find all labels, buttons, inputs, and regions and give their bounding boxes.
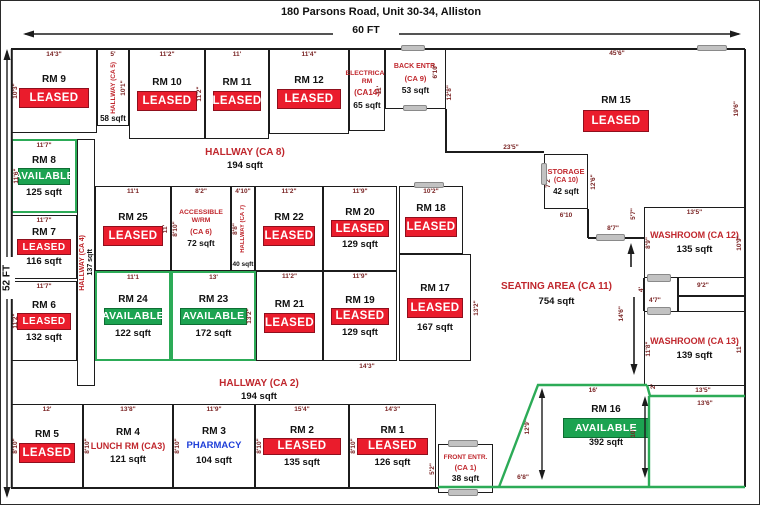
dim-label: 2'	[651, 384, 658, 389]
dim-top: 11'1	[127, 275, 139, 282]
room-label: STORAGE	[548, 167, 585, 176]
room-hallway-ca7: 4'10" 8'8" HALLWAY (CA 7) 40 sqft	[231, 186, 255, 271]
dim-top: 11'	[233, 52, 241, 59]
room-name: RM 21	[275, 299, 304, 310]
room-name: RM 3	[202, 426, 226, 437]
status-badge: LEASED	[19, 443, 75, 463]
dim-top: 5'	[110, 52, 115, 59]
door-back-entrance-bottom	[403, 105, 427, 111]
hallway-sqft: 194 sqft	[189, 392, 329, 402]
dim-left: 8'9"	[646, 237, 653, 249]
room-label: ELECTRICAL RM	[346, 70, 389, 86]
status-badge: LEASED	[263, 226, 315, 246]
dim-label: 13'6"	[675, 400, 735, 407]
dim-top: 11'9"	[206, 407, 221, 414]
dim-label: 4'7"	[649, 298, 661, 305]
status-badge: LEASED	[583, 110, 649, 132]
dim-left: 12'9"	[525, 419, 532, 434]
dim-top: 11'2"	[159, 52, 174, 59]
room-rm10: 11'2" 11'2" RM 10 LEASED	[129, 49, 205, 139]
status-badge: LEASED	[213, 91, 261, 111]
room-sqft: 129 sqft	[342, 327, 378, 338]
dim-label: 23'5"	[481, 144, 541, 151]
room-ca: (CA 6)	[190, 227, 212, 236]
dim-top: 14'3"	[46, 52, 61, 59]
dim-top: 11'1	[127, 189, 139, 196]
dim-bottom: 6'8"	[501, 474, 545, 481]
seating-area-sqft: 754 sqft	[484, 297, 629, 307]
dim-label: 19'6"	[734, 101, 741, 116]
room-rm3: 11'9" 8'10" RM 3 PHARMACY 104 sqft	[173, 404, 255, 488]
arrow-down-icon	[4, 487, 11, 498]
room-name: RM 25	[118, 212, 147, 223]
room-ca: (CA 10)	[554, 177, 578, 185]
room-sqft: 122 sqft	[115, 328, 151, 339]
dim-label: 14'3"	[345, 363, 389, 370]
room-sqft: 104 sqft	[196, 455, 232, 466]
door-rm18	[414, 182, 444, 188]
dim-top: 10'2"	[423, 189, 438, 196]
dim-left: 8'10"	[257, 438, 264, 453]
door-washroom-ca12	[647, 274, 671, 282]
room-name: RM 20	[345, 207, 374, 218]
hallway-sqft: 137 sqft	[87, 249, 94, 275]
hallway-sqft: 40 sqft	[233, 262, 254, 269]
room-rm22: 11'2" RM 22 LEASED	[255, 186, 323, 271]
room-rm17: 13'2" RM 17 LEASED 167 sqft	[399, 254, 471, 361]
dim-top: 11'2"	[282, 274, 297, 281]
dim-right: 10'9"	[737, 235, 744, 250]
room-name: RM 9	[42, 74, 66, 85]
room-name: RM 19	[345, 295, 374, 306]
room-name: RM 2	[290, 425, 314, 436]
status-badge: LEASED	[277, 89, 341, 109]
room-washroom-ca13: 11'8" 11' WASHROOM (CA 13) 139 sqft	[644, 311, 745, 386]
hallway-label: HALLWAY (CA 2)	[189, 378, 329, 389]
room-name: RM 11	[223, 77, 252, 88]
dim-left: 8'8"	[233, 223, 240, 235]
room-washroom-ca12: 13'5" 8'9" 10'9" WASHROOM (CA 12) 135 sq…	[644, 207, 745, 278]
dim-label: 13'5"	[673, 387, 733, 394]
dim-top: 15'4"	[294, 407, 309, 414]
room-storage: STORAGE (CA 10) 42 sqft 7'2" 12'6" 6'10	[544, 154, 588, 209]
hallway-label: HALLWAY (CA 4)	[79, 235, 86, 291]
dim-top: 13'	[209, 275, 218, 282]
dim-bottom: 6'10	[560, 213, 572, 220]
status-badge: LEASED	[17, 239, 71, 255]
hallway-label: HALLWAY (CA 5)	[110, 62, 117, 114]
dim-label: 12'8"	[447, 85, 454, 100]
room-name: RM 8	[32, 155, 56, 166]
dim-top: 4'10"	[235, 189, 250, 196]
room-name: RM 18	[416, 203, 445, 214]
room-name: RM 16	[574, 404, 638, 415]
dim-right: 13'2"	[247, 308, 254, 323]
room-sqft: 139 sqft	[677, 350, 713, 361]
room-rm23: 13' 13'2" RM 23 AVAILABLE 172 sqft	[171, 271, 256, 361]
room-sqft: 53 sqft	[402, 85, 429, 95]
dim-left: 11'6"	[14, 168, 21, 183]
room-label: WASHROOM (CA 12)	[650, 230, 739, 241]
dim-right: 11'2"	[197, 86, 204, 101]
room-ca: (CA 9)	[405, 74, 427, 83]
room-sqft: 129 sqft	[342, 239, 378, 250]
dim-left: 8'10"	[175, 438, 182, 453]
room-front-entrance: FRONT ENTR. (CA 1) 38 sqft 5'2"	[438, 444, 493, 493]
dim-left: 8'10"	[351, 438, 358, 453]
seating-area-label: SEATING AREA (CA 11)	[484, 281, 629, 292]
room-rm20: 11'9" RM 20 LEASED 129 sqft	[323, 186, 397, 271]
dim-right: 11'	[377, 86, 384, 94]
room-label: LUNCH RM (CA3)	[91, 441, 166, 452]
dim-top: 13'5"	[687, 210, 702, 217]
room-name: RM 23	[199, 294, 228, 305]
door-front-entrance-bottom	[448, 489, 478, 496]
arrow-left-icon	[23, 31, 34, 38]
room-sqft: 167 sqft	[417, 322, 453, 333]
pharmacy-label: PHARMACY	[187, 440, 242, 451]
room-sqft: 65 sqft	[353, 100, 380, 110]
status-badge: LEASED	[17, 313, 71, 330]
room-rm19: 11'9" RM 19 LEASED 129 sqft	[323, 271, 397, 361]
room-sqft: 72 sqft	[187, 238, 214, 248]
hallway-label: HALLWAY (CA 7)	[240, 205, 246, 253]
dim-left: 11'2"	[13, 313, 20, 328]
status-badge: LEASED	[407, 298, 463, 318]
room-name: RM 6	[32, 300, 56, 311]
room-sqft: 116 sqft	[26, 256, 61, 267]
room-rm11: 11' RM 11 LEASED	[205, 49, 269, 139]
room-name: RM 5	[35, 429, 59, 440]
status-badge: LEASED	[137, 91, 197, 111]
dim-left: 10'3"	[13, 83, 20, 98]
dim-right: 11'	[163, 224, 170, 232]
arrow-up-icon	[628, 243, 635, 254]
room-rm6: 11'7" 11'2" RM 6 LEASED 132 sqft	[11, 281, 77, 361]
status-badge: LEASED	[103, 226, 163, 246]
room-rm12: 11'4" RM 12 LEASED	[269, 49, 349, 134]
door-seating-area	[596, 234, 625, 241]
status-badge: LEASED	[331, 308, 389, 325]
door-front-entrance-top	[448, 440, 478, 447]
room-name: RM 22	[274, 212, 303, 223]
room-sqft: 42 sqft	[553, 187, 579, 196]
room-hallway-ca5: 5' HALLWAY (CA 5) 10'1" 58 sqft	[97, 49, 129, 126]
room-name: RM 4	[116, 427, 140, 438]
dim-right: 13'2"	[474, 300, 481, 315]
dim-left: 8'10"	[173, 221, 180, 236]
dim-label: 4'	[639, 287, 646, 292]
room-electrical: ELECTRICAL RM (CA14) 65 sqft 11'	[349, 49, 385, 131]
dim-top: 11'7"	[36, 143, 51, 150]
status-badge: AVAILABLE	[104, 308, 162, 325]
dim-label: 9'2"	[697, 283, 709, 290]
dim-top: 11'4"	[301, 52, 316, 59]
room-sqft: 125 sqft	[26, 187, 62, 198]
dim-top: 11'9"	[352, 189, 367, 196]
room-ca: (CA 1)	[455, 463, 477, 472]
room-name: RM 15	[585, 95, 647, 106]
room-rm24: 11'1 RM 24 AVAILABLE 122 sqft	[95, 271, 171, 361]
arrow-up-icon	[642, 396, 648, 406]
dim-label: 45'6"	[589, 50, 645, 57]
dim-right: 10'1"	[121, 80, 128, 95]
room-name: RM 17	[420, 283, 449, 294]
dim-top: 11'2"	[281, 189, 296, 196]
door-storage	[541, 163, 547, 185]
room-rm18: 10'2" RM 18 LEASED	[399, 186, 463, 254]
room-sqft: 121 sqft	[110, 454, 146, 465]
room-name: RM 24	[118, 294, 147, 305]
status-badge: LEASED	[263, 438, 341, 455]
status-badge: LEASED	[264, 313, 315, 333]
room-sqft: 135 sqft	[677, 244, 713, 255]
room-rm25: 11'1 11' RM 25 LEASED	[95, 186, 171, 271]
room-rm21: 11'2" RM 21 LEASED	[256, 271, 323, 361]
dim-top: 11'7"	[36, 218, 51, 225]
dim-right: 10'	[631, 429, 638, 438]
room-sqft: 38 sqft	[452, 473, 479, 483]
dim-top: 14'3"	[385, 407, 400, 414]
status-badge: LEASED	[357, 438, 428, 455]
overall-height-label: 52 FT	[0, 257, 15, 299]
room-label: ACCESSIBLE W/RM	[175, 209, 227, 225]
arrow-right-icon	[730, 31, 741, 38]
dim-top: 13'8"	[120, 407, 135, 414]
door-back-entrance-top	[401, 45, 425, 51]
room-sqft: 126 sqft	[375, 457, 411, 468]
room-sqft: 392 sqft	[570, 438, 642, 448]
dim-label: 5'7"	[631, 208, 638, 220]
arrow-down-icon	[642, 468, 648, 478]
arrow-up-icon	[539, 388, 545, 398]
hallway-sqft: 194 sqft	[175, 161, 315, 171]
room-rm9: 14'3" 10'3" RM 9 LEASED	[11, 49, 97, 133]
room-hallway-ca4: HALLWAY (CA 4) 137 sqft	[77, 139, 95, 386]
arrow-up-icon	[4, 49, 11, 60]
room-sqft: 135 sqft	[284, 457, 320, 468]
room-rm4: 13'8" 8'10" RM 4 LUNCH RM (CA3) 121 sqft	[83, 404, 173, 488]
hallway-label: HALLWAY (CA 8)	[175, 147, 315, 158]
door-washroom-ca13	[647, 307, 671, 315]
room-label: FRONT ENTR.	[444, 454, 488, 462]
room-sqft: 132 sqft	[26, 332, 62, 343]
room-back-entrance: BACK ENTR. (CA 9) 53 sqft	[385, 49, 446, 109]
hallway-sqft: 58 sqft	[100, 115, 126, 123]
room-name: RM 10	[152, 77, 181, 88]
room-rm7: 11'7" RM 7 LEASED 116 sqft	[11, 215, 77, 279]
status-badge: AVAILABLE	[18, 168, 70, 185]
dim-top: 16'	[571, 387, 615, 394]
dim-right: 12'6"	[591, 174, 598, 189]
dim-top: 11'9"	[352, 274, 367, 281]
room-sqft: 172 sqft	[196, 328, 232, 339]
dim-left: 5'2"	[430, 463, 437, 475]
status-badge: LEASED	[405, 217, 457, 237]
dim-top: 12'	[43, 407, 52, 414]
dim-top: 8'2"	[195, 189, 207, 196]
status-badge: LEASED	[331, 220, 389, 237]
dim-label: 14'6"	[619, 306, 626, 321]
room-accessible-washroom: 8'2" 8'10" ACCESSIBLE W/RM (CA 6) 72 sqf…	[171, 186, 231, 271]
status-badge: LEASED	[19, 88, 89, 108]
door-top-right	[697, 45, 727, 51]
room-label: WASHROOM (CA 13)	[650, 336, 739, 347]
room-rm1: 14'3" 8'10" RM 1 LEASED 126 sqft	[349, 404, 436, 488]
room-rm5: 12' 8'10" RM 5 LEASED	[11, 404, 83, 488]
room-label: BACK ENTR.	[394, 63, 437, 71]
dim-left: 8'10"	[85, 438, 92, 453]
dim-right: 11'	[737, 344, 744, 352]
status-badge: AVAILABLE	[180, 308, 247, 325]
room-rm8: 11'7" 11'6" RM 8 AVAILABLE 125 sqft	[11, 139, 77, 213]
dim-top: 11'7"	[36, 284, 51, 291]
dim-label: 8'7"	[598, 225, 628, 232]
overall-width-label: 60 FT	[333, 24, 399, 36]
room-name: RM 7	[32, 227, 56, 238]
room-rm2: 15'4" 8'10" RM 2 LEASED 135 sqft	[255, 404, 349, 488]
dim-label: 6'10"	[433, 63, 440, 78]
floor-plan: 180 Parsons Road, Unit 30-34, Alliston 6…	[0, 0, 760, 505]
arrow-down-icon	[631, 364, 638, 375]
room-name: RM 1	[381, 425, 405, 436]
page-title: 180 Parsons Road, Unit 30-34, Alliston	[1, 6, 760, 18]
room-name: RM 12	[294, 75, 323, 86]
dim-left: 11'8"	[646, 341, 653, 356]
dim-left: 8'10"	[13, 438, 20, 453]
